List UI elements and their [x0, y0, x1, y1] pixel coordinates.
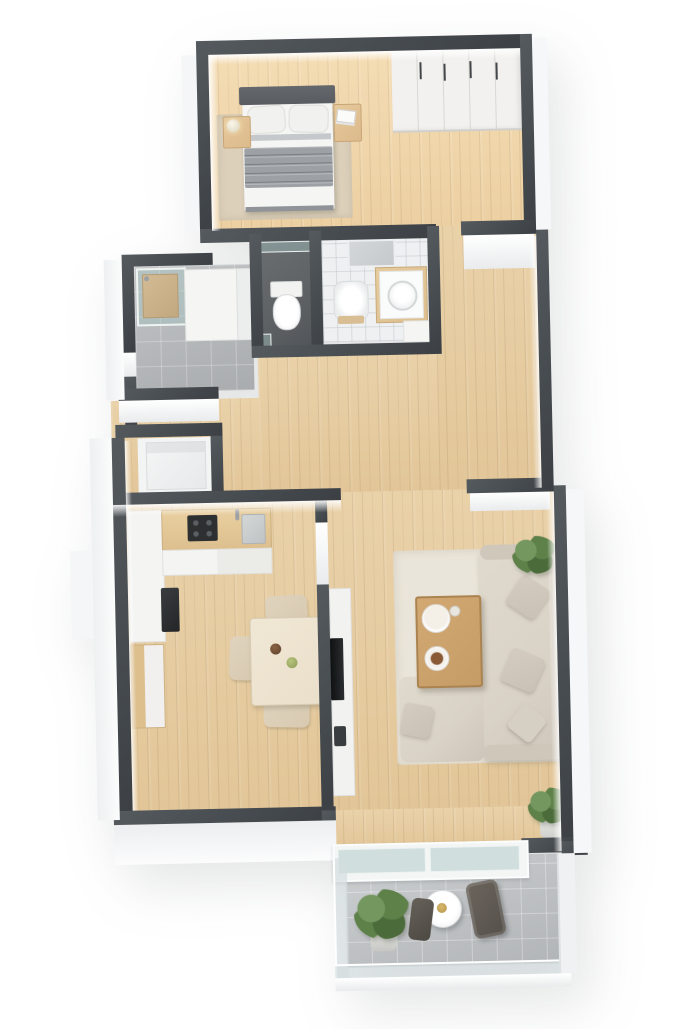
built-in-appliance — [161, 588, 180, 632]
tv — [330, 638, 344, 700]
mirror — [347, 239, 396, 268]
wall-outer-shower — [104, 260, 125, 400]
wall-face-bedroom-door — [463, 234, 535, 270]
storage-appliance — [146, 441, 207, 490]
entry-door — [124, 353, 137, 377]
wardrobe — [391, 48, 522, 133]
balcony-door-pane — [338, 847, 427, 874]
balcony-railing-right — [557, 853, 578, 973]
bed-duvet — [244, 146, 333, 188]
wc-toilet-bowl — [272, 294, 301, 331]
sofa-pillow — [399, 702, 434, 739]
bath-toilet-base — [338, 316, 364, 325]
wall-face-living-stub — [470, 492, 550, 512]
speaker — [334, 726, 346, 746]
wall-niche-top — [115, 423, 222, 438]
wall-shower-top — [122, 253, 213, 267]
bath-cabinet — [403, 320, 431, 343]
wardrobe-handle — [419, 62, 421, 79]
bed-pillow-right — [288, 104, 328, 133]
apartment-plan — [0, 0, 686, 1029]
wall-outer-right-top — [532, 37, 551, 229]
kitchen-sink — [241, 514, 266, 545]
bed-pillow-left — [247, 104, 287, 135]
cooktop — [187, 515, 218, 542]
shower-room-cabinets — [184, 268, 254, 341]
hall-floor — [258, 350, 441, 494]
floor-plan-image — [0, 0, 686, 1029]
wardrobe-handle — [495, 63, 497, 80]
balcony-railing-left — [333, 858, 350, 980]
wc-glass-panel — [259, 241, 311, 253]
books — [336, 109, 356, 124]
doorway-partition — [315, 522, 328, 584]
balcony-door-pane — [430, 845, 521, 872]
wall-outer-protrusion — [70, 551, 94, 639]
shower-head — [144, 276, 149, 281]
wall-shower-left — [122, 255, 136, 353]
bed-headboard — [239, 85, 335, 105]
wardrobe-handle — [443, 64, 445, 81]
wall-outer-bottom — [114, 820, 337, 865]
wall-face-shower-bottom — [119, 399, 219, 423]
kitchen-base-cabinets — [162, 548, 273, 576]
wardrobe-handle — [469, 61, 471, 78]
